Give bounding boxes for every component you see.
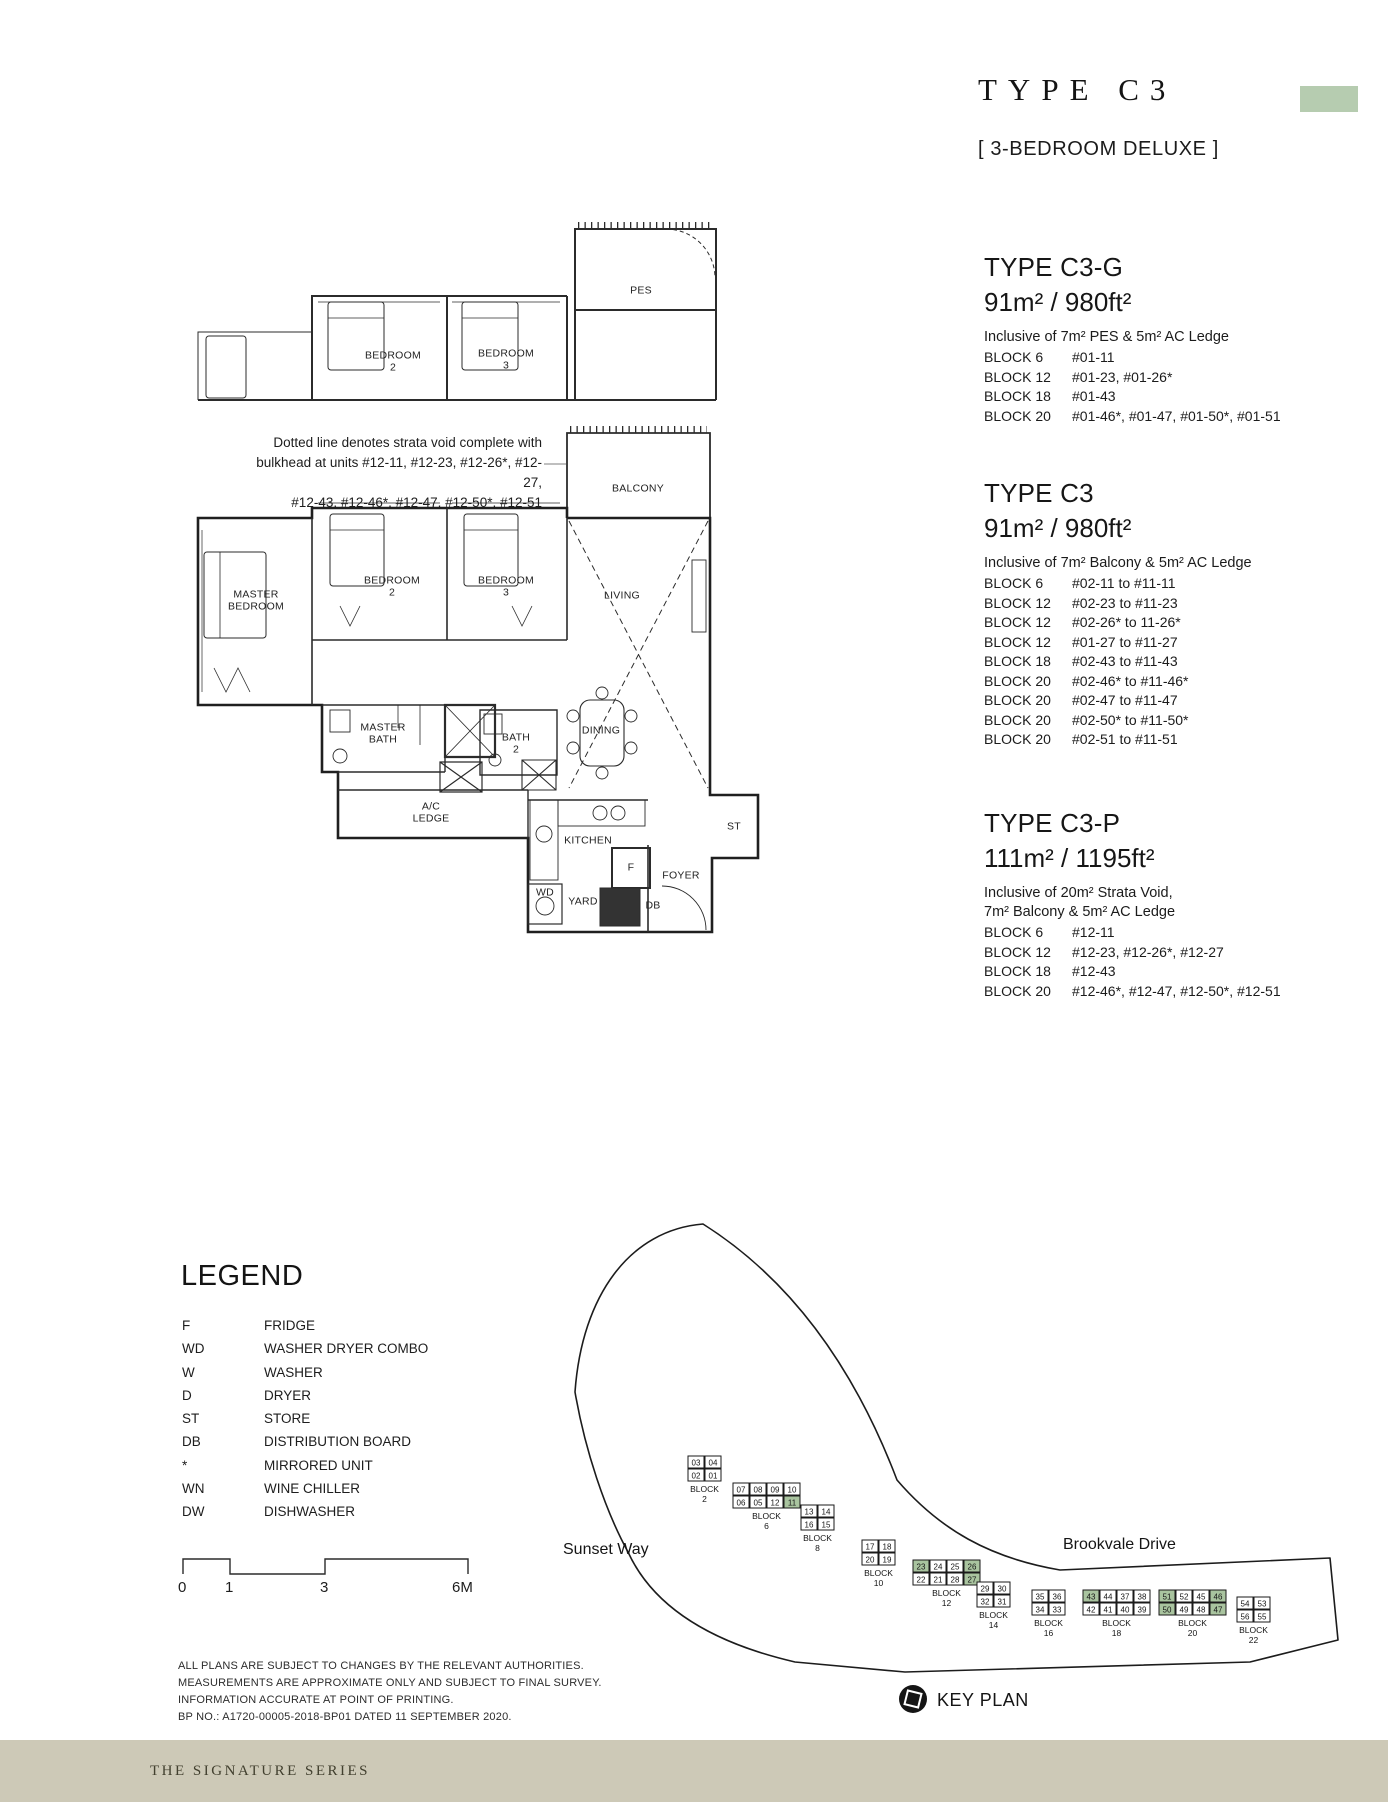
key-plan-unit-number: 37 <box>1121 1593 1130 1602</box>
key-plan-unit-number: 41 <box>1104 1606 1113 1615</box>
block-units: #02-11 to #11-11 <box>1072 574 1354 594</box>
key-plan-unit-number: 50 <box>1163 1606 1172 1615</box>
key-plan-block-label: 12 <box>942 1598 952 1608</box>
key-plan-label: KEY PLAN <box>937 1690 1029 1710</box>
key-plan-unit-number: 39 <box>1138 1606 1147 1615</box>
scale-label: 3 <box>320 1579 328 1596</box>
key-plan-block-label: BLOCK <box>979 1610 1008 1620</box>
key-plan-unit-number: 17 <box>866 1543 875 1552</box>
key-plan-unit-number: 36 <box>1053 1593 1062 1602</box>
block-name: BLOCK 12 <box>984 943 1072 963</box>
room-label-line: MASTER <box>228 590 284 602</box>
key-plan-unit-number: 33 <box>1053 1606 1062 1615</box>
block-name: BLOCK 20 <box>984 982 1072 1002</box>
key-plan-unit-number: 02 <box>692 1472 701 1481</box>
room-label-wd: WD <box>536 887 554 899</box>
key-plan-unit-number: 07 <box>737 1486 746 1495</box>
legend-value: DISHWASHER <box>264 1500 492 1523</box>
legend-value: WASHER DRYER COMBO <box>264 1337 492 1360</box>
unit-type-name: TYPE C3-G <box>984 252 1354 282</box>
key-plan-unit-number: 06 <box>737 1499 746 1508</box>
room-label-yard: YARD <box>568 896 597 908</box>
legend-value: STORE <box>264 1407 492 1430</box>
unit-type-area: 91m² / 980ft² <box>984 287 1354 318</box>
block-name: BLOCK 20 <box>984 691 1072 711</box>
key-plan-block-label: BLOCK <box>1178 1618 1207 1628</box>
legend-key: W <box>182 1361 264 1384</box>
unit-type-block-list: BLOCK 6#12-11BLOCK 12#12-23, #12-26*, #1… <box>984 923 1354 1001</box>
room-label-kitchen: KITCHEN <box>564 835 612 847</box>
block-units: #01-46*, #01-47, #01-50*, #01-51 <box>1072 407 1354 427</box>
unit-type-name: TYPE C3 <box>984 478 1354 508</box>
block-name: BLOCK 18 <box>984 652 1072 672</box>
unit-type-area: 91m² / 980ft² <box>984 513 1354 544</box>
room-label-bath2: BATH 2 <box>502 733 530 756</box>
key-plan-unit-number: 43 <box>1087 1593 1096 1602</box>
footer-series-title: THE SIGNATURE SERIES <box>150 1763 370 1780</box>
legend-key: WD <box>182 1337 264 1360</box>
key-plan-block-label: 22 <box>1249 1635 1259 1645</box>
room-label-line: BEDROOM <box>478 349 534 361</box>
block-units: #12-23, #12-26*, #12-27 <box>1072 943 1354 963</box>
block-units: #12-46*, #12-47, #12-50*, #12-51 <box>1072 982 1354 1002</box>
key-plan-unit-number: 42 <box>1087 1606 1096 1615</box>
unit-type-section: TYPE C391m² / 980ft²Inclusive of 7m² Bal… <box>984 478 1354 750</box>
room-label-bedroom3-upper: BEDROOM 3 <box>478 349 534 372</box>
legend-title: LEGEND <box>181 1260 303 1293</box>
key-plan-unit-number: 52 <box>1180 1593 1189 1602</box>
scale-label: 1 <box>225 1579 233 1596</box>
block-units: #12-43 <box>1072 962 1354 982</box>
key-plan-unit-number: 03 <box>692 1459 701 1468</box>
key-plan-unit-number: 55 <box>1258 1613 1267 1622</box>
key-plan-block-label: BLOCK <box>1102 1618 1131 1628</box>
key-plan-block-label: BLOCK <box>864 1568 893 1578</box>
note-line: bulkhead at units #12-11, #12-23, #12-26… <box>242 453 542 493</box>
key-plan-blocks: 03040201BLOCK20708091006051211BLOCK61314… <box>688 1456 1270 1645</box>
key-plan-unit-number: 12 <box>771 1499 780 1508</box>
room-label-line: BATH <box>360 734 405 746</box>
key-plan-unit-number: 13 <box>805 1508 814 1517</box>
key-plan-block-label: BLOCK <box>690 1484 719 1494</box>
block-name: BLOCK 12 <box>984 633 1072 653</box>
block-units: #01-27 to #11-27 <box>1072 633 1354 653</box>
key-plan-unit-number: 32 <box>981 1598 990 1607</box>
block-name: BLOCK 6 <box>984 348 1072 368</box>
unit-type-section: TYPE C3-G91m² / 980ft²Inclusive of 7m² P… <box>984 252 1354 426</box>
legend-value: DRYER <box>264 1384 492 1407</box>
block-name: BLOCK 20 <box>984 730 1072 750</box>
key-plan: Sunset Way Brookvale Drive 03040201BLOCK… <box>480 1205 1360 1715</box>
block-name: BLOCK 18 <box>984 387 1072 407</box>
block-name: BLOCK 20 <box>984 711 1072 731</box>
key-plan-unit-number: 14 <box>822 1508 831 1517</box>
key-plan-unit-number: 05 <box>754 1499 763 1508</box>
room-label-line: 2 <box>502 744 530 756</box>
key-plan-unit-number: 19 <box>883 1556 892 1565</box>
inclusive-line: Inclusive of 7m² PES & 5m² AC Ledge <box>984 328 1354 347</box>
legend-value: MIRRORED UNIT <box>264 1454 492 1477</box>
legend-value: FRIDGE <box>264 1314 492 1337</box>
room-label-line: BEDROOM <box>365 351 421 363</box>
room-label-line: 2 <box>364 587 420 599</box>
key-plan-unit-number: 34 <box>1036 1606 1045 1615</box>
room-label-fridge: F <box>628 862 635 874</box>
legend-key: WN <box>182 1477 264 1500</box>
key-plan-unit-number: 09 <box>771 1486 780 1495</box>
block-name: BLOCK 6 <box>984 574 1072 594</box>
room-label-db: DB <box>645 900 660 912</box>
page-title: TYPE C3 <box>978 72 1176 108</box>
key-plan-unit-number: 45 <box>1197 1593 1206 1602</box>
inclusive-line: 7m² Balcony & 5m² AC Ledge <box>984 903 1354 922</box>
legend-key: F <box>182 1314 264 1337</box>
key-plan-unit-number: 56 <box>1241 1613 1250 1622</box>
key-plan-unit-number: 46 <box>1214 1593 1223 1602</box>
key-plan-block-label: BLOCK <box>1034 1618 1063 1628</box>
unit-type-inclusive: Inclusive of 7m² Balcony & 5m² AC Ledge <box>984 554 1354 573</box>
room-label-line: MASTER <box>360 723 405 735</box>
key-plan-block-label: 10 <box>874 1578 884 1588</box>
unit-type-inclusive: Inclusive of 7m² PES & 5m² AC Ledge <box>984 328 1354 347</box>
unit-type-inclusive: Inclusive of 20m² Strata Void,7m² Balcon… <box>984 884 1354 922</box>
room-label-living: LIVING <box>604 590 640 602</box>
key-plan-block-label: 2 <box>702 1494 707 1504</box>
block-units: #02-26* to 11-26* <box>1072 613 1354 633</box>
key-plan-block-label: 8 <box>815 1543 820 1553</box>
key-plan-unit-number: 53 <box>1258 1600 1267 1609</box>
floorplan-page: TYPE C3 [ 3-BEDROOM DELUXE ] <box>0 0 1388 1802</box>
key-plan-unit-number: 54 <box>1241 1600 1250 1609</box>
key-plan-unit-number: 26 <box>968 1563 977 1572</box>
block-units: #02-23 to #11-23 <box>1072 594 1354 614</box>
road-label-sunset-way: Sunset Way <box>563 1541 649 1558</box>
legend-key: ST <box>182 1407 264 1430</box>
key-plan-block-label: 18 <box>1112 1628 1122 1638</box>
room-label-line: BATH <box>502 733 530 745</box>
scale-bar <box>170 1550 490 1590</box>
block-units: #02-51 to #11-51 <box>1072 730 1354 750</box>
key-plan-unit-number: 15 <box>822 1521 831 1530</box>
room-label-line: A/C <box>413 802 450 814</box>
legend-key: DW <box>182 1500 264 1523</box>
key-plan-unit-number: 16 <box>805 1521 814 1530</box>
key-plan-block-label: 14 <box>989 1620 999 1630</box>
key-plan-block-label: 20 <box>1188 1628 1198 1638</box>
block-units: #02-47 to #11-47 <box>1072 691 1354 711</box>
key-plan-unit-number: 20 <box>866 1556 875 1565</box>
room-label-line: 3 <box>478 587 534 599</box>
block-units: #01-23, #01-26* <box>1072 368 1354 388</box>
key-plan-unit-number: 25 <box>951 1563 960 1572</box>
key-plan-unit-number: 38 <box>1138 1593 1147 1602</box>
block-units: #12-11 <box>1072 923 1354 943</box>
room-label-master-bath: MASTER BATH <box>360 723 405 746</box>
block-name: BLOCK 20 <box>984 407 1072 427</box>
key-plan-block-label: BLOCK <box>752 1511 781 1521</box>
key-plan-unit-number: 30 <box>998 1585 1007 1594</box>
block-units: #02-46* to #11-46* <box>1072 672 1354 692</box>
key-plan-unit-number: 48 <box>1197 1606 1206 1615</box>
key-plan-unit-number: 29 <box>981 1585 990 1594</box>
block-name: BLOCK 12 <box>984 594 1072 614</box>
scale-label: 0 <box>178 1579 186 1596</box>
key-plan-unit-number: 35 <box>1036 1593 1045 1602</box>
legend-key: * <box>182 1454 264 1477</box>
key-plan-unit-number: 40 <box>1121 1606 1130 1615</box>
room-label-line: BEDROOM <box>478 576 534 588</box>
room-label-bedroom2: BEDROOM 2 <box>364 576 420 599</box>
accent-bar <box>1300 86 1358 112</box>
key-plan-unit-number: 49 <box>1180 1606 1189 1615</box>
room-label-line: BEDROOM <box>364 576 420 588</box>
key-plan-unit-number: 11 <box>788 1499 797 1508</box>
block-name: BLOCK 12 <box>984 368 1072 388</box>
key-plan-unit-number: 44 <box>1104 1593 1113 1602</box>
key-plan-unit-number: 28 <box>951 1576 960 1585</box>
room-label-bedroom2-upper: BEDROOM 2 <box>365 351 421 374</box>
block-units: #02-43 to #11-43 <box>1072 652 1354 672</box>
key-plan-unit-number: 24 <box>934 1563 943 1572</box>
key-plan-unit-number: 08 <box>754 1486 763 1495</box>
room-label-line: 3 <box>478 360 534 372</box>
strata-void-note: Dotted line denotes strata void complete… <box>242 433 542 513</box>
key-plan-unit-number: 27 <box>968 1576 977 1585</box>
legend-value: DISTRIBUTION BOARD <box>264 1430 492 1453</box>
note-line: Dotted line denotes strata void complete… <box>242 433 542 453</box>
legend-key: D <box>182 1384 264 1407</box>
room-label-line: LEDGE <box>413 813 450 825</box>
block-name: BLOCK 12 <box>984 613 1072 633</box>
block-units: #02-50* to #11-50* <box>1072 711 1354 731</box>
block-name: BLOCK 18 <box>984 962 1072 982</box>
key-plan-block-label: BLOCK <box>803 1533 832 1543</box>
key-plan-block-label: BLOCK <box>932 1588 961 1598</box>
key-plan-unit-number: 47 <box>1214 1606 1223 1615</box>
block-units: #01-11 <box>1072 348 1354 368</box>
room-label-bedroom3: BEDROOM 3 <box>478 576 534 599</box>
room-label-master-bedroom: MASTER BEDROOM <box>228 590 284 613</box>
unit-type-block-list: BLOCK 6#01-11BLOCK 12#01-23, #01-26*BLOC… <box>984 348 1354 426</box>
block-name: BLOCK 6 <box>984 923 1072 943</box>
key-plan-unit-number: 51 <box>1163 1593 1172 1602</box>
road-label-brookvale-drive: Brookvale Drive <box>1063 1536 1176 1553</box>
room-label-balcony: BALCONY <box>612 483 664 495</box>
room-label-foyer: FOYER <box>662 870 699 882</box>
scale-label: 6M <box>452 1579 473 1596</box>
unit-type-area: 111m² / 1195ft² <box>984 843 1354 874</box>
key-plan-block-label: 6 <box>764 1521 769 1531</box>
key-plan-unit-number: 10 <box>788 1486 797 1495</box>
legend-key: DB <box>182 1430 264 1453</box>
key-plan-unit-number: 21 <box>934 1576 943 1585</box>
key-plan-unit-number: 23 <box>917 1563 926 1572</box>
footer-bar: THE SIGNATURE SERIES <box>0 1740 1388 1802</box>
room-label-line: 2 <box>365 362 421 374</box>
room-label-ac-ledge: A/C LEDGE <box>413 802 450 825</box>
unit-type-name: TYPE C3-P <box>984 808 1354 838</box>
unit-type-section: TYPE C3-P111m² / 1195ft²Inclusive of 20m… <box>984 808 1354 1001</box>
key-plan-block-label: 16 <box>1044 1628 1054 1638</box>
note-line: #12-43, #12-46*, #12-47, #12-50*, #12-51 <box>242 493 542 513</box>
compass-icon <box>899 1685 927 1713</box>
key-plan-unit-number: 18 <box>883 1543 892 1552</box>
legend-value: WASHER <box>264 1361 492 1384</box>
room-label-dining: DINING <box>582 725 620 737</box>
inclusive-line: Inclusive of 20m² Strata Void, <box>984 884 1354 903</box>
legend-value: WINE CHILLER <box>264 1477 492 1500</box>
block-units: #01-43 <box>1072 387 1354 407</box>
legend-items: FFRIDGEWDWASHER DRYER COMBOWWASHERDDRYER… <box>182 1314 492 1524</box>
key-plan-unit-number: 04 <box>709 1459 718 1468</box>
room-label-st: ST <box>727 821 741 833</box>
page-subtitle: [ 3-BEDROOM DELUXE ] <box>978 138 1219 161</box>
inclusive-line: Inclusive of 7m² Balcony & 5m² AC Ledge <box>984 554 1354 573</box>
block-name: BLOCK 20 <box>984 672 1072 692</box>
key-plan-unit-number: 31 <box>998 1598 1007 1607</box>
key-plan-block-label: BLOCK <box>1239 1625 1268 1635</box>
unit-type-block-list: BLOCK 6#02-11 to #11-11BLOCK 12#02-23 to… <box>984 574 1354 750</box>
key-plan-unit-number: 22 <box>917 1576 926 1585</box>
room-label-pes: PES <box>630 285 652 297</box>
key-plan-unit-number: 01 <box>709 1472 718 1481</box>
room-label-line: BEDROOM <box>228 601 284 613</box>
